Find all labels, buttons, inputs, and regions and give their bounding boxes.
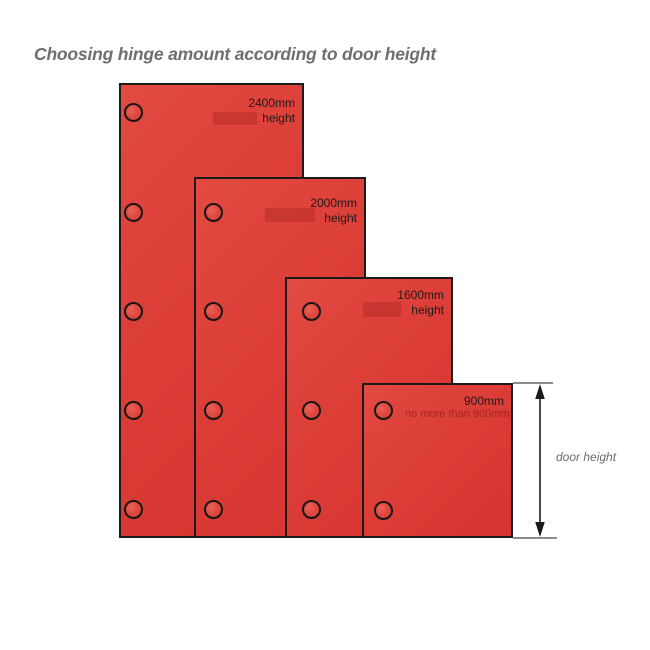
hinge-circle <box>124 302 143 321</box>
hinge-circle <box>204 500 223 519</box>
dimension-label: door height <box>556 450 616 464</box>
arrow-down-icon <box>535 522 545 537</box>
hinge-circle <box>204 302 223 321</box>
door-height-word: height <box>310 211 357 226</box>
door-900mm: 900mmno more than 900mm <box>362 383 513 538</box>
hinge-circle <box>204 203 223 222</box>
hinge-circle <box>124 103 143 122</box>
door-height-value: 2000mm <box>310 196 357 211</box>
ghost-mark <box>213 112 257 125</box>
door-height-value: 2400mm <box>248 96 295 111</box>
arrow-up-icon <box>535 384 545 399</box>
diagram: Choosing hinge amount according to door … <box>0 0 650 650</box>
ghost-mark <box>265 208 315 222</box>
hinge-circle <box>374 401 393 420</box>
hinge-circle <box>302 401 321 420</box>
hinge-circle <box>124 500 143 519</box>
door-height-label: 2000mmheight <box>310 196 357 226</box>
door-height-value: 1600mm <box>397 288 444 303</box>
hinge-circle <box>124 401 143 420</box>
hinge-circle <box>302 500 321 519</box>
page-title: Choosing hinge amount according to door … <box>34 44 436 65</box>
hinge-circle <box>374 501 393 520</box>
hinge-circle <box>302 302 321 321</box>
hinge-circle <box>124 203 143 222</box>
ghost-mark <box>363 302 401 317</box>
ghost-note-text: no more than 900mm <box>405 407 508 421</box>
door-height-label: 1600mmheight <box>397 288 444 318</box>
door-height-word: height <box>397 303 444 318</box>
hinge-circle <box>204 401 223 420</box>
